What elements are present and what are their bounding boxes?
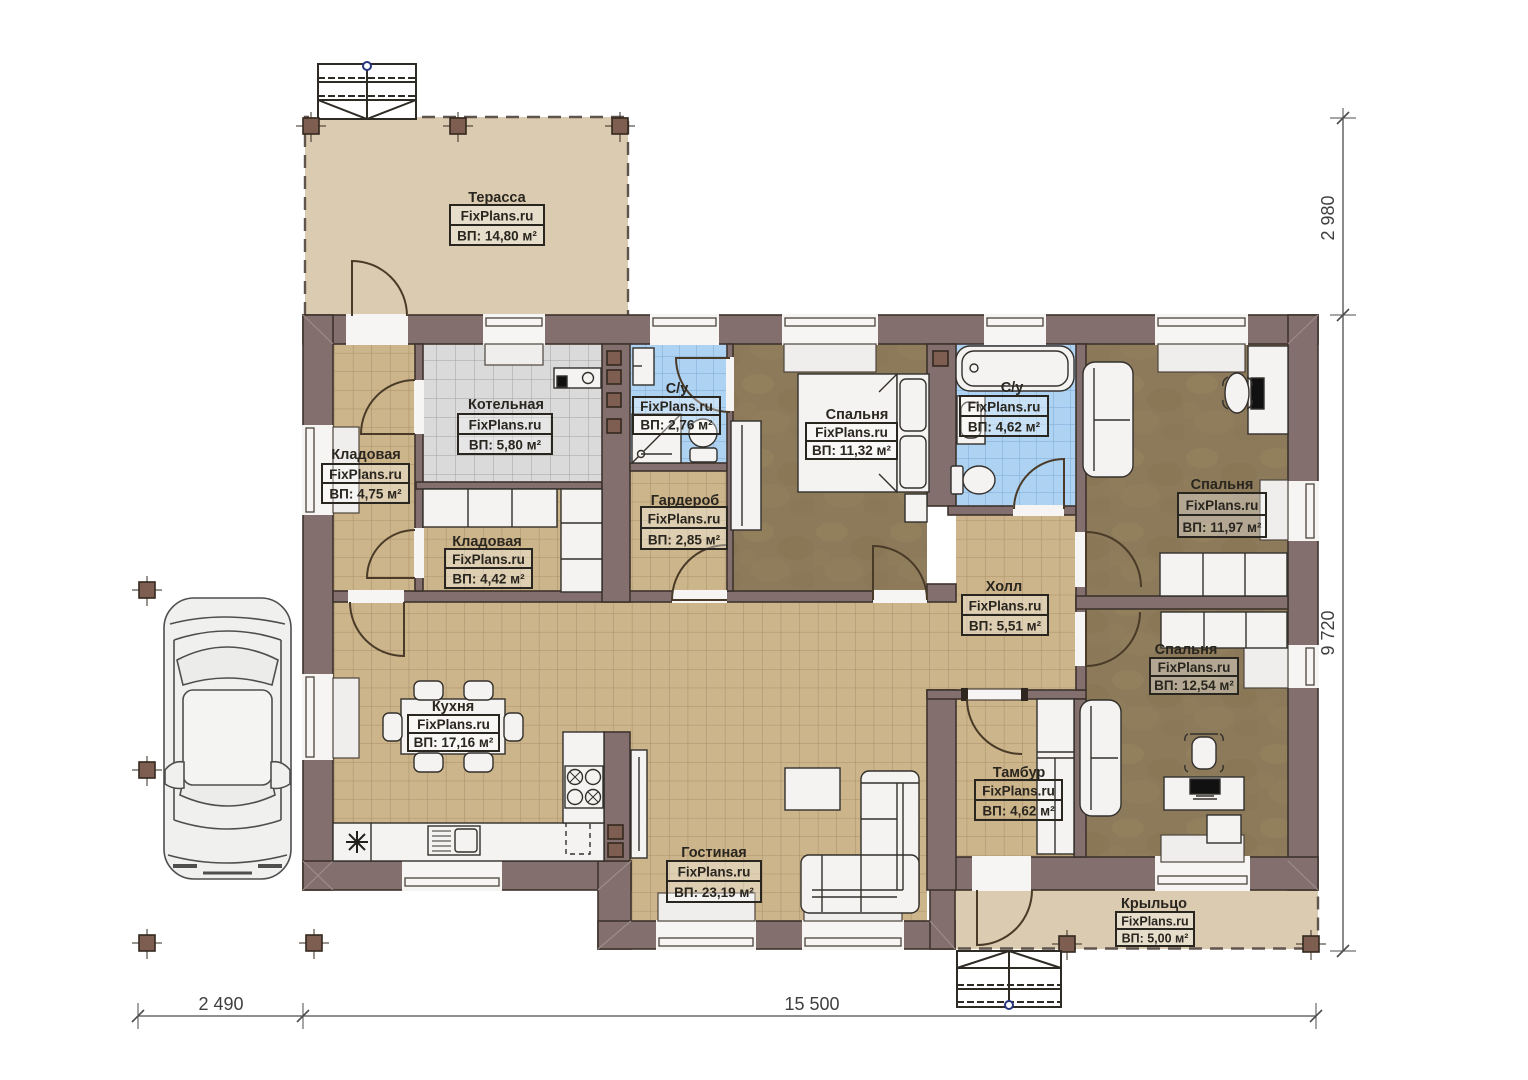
svg-text:С/у: С/у	[1001, 380, 1024, 396]
svg-text:2 490: 2 490	[198, 994, 243, 1014]
svg-text:ВП: 5,80 м²: ВП: 5,80 м²	[469, 438, 542, 453]
svg-text:FixPlans.ru: FixPlans.ru	[469, 418, 542, 433]
svg-text:Терасса: Терасса	[468, 190, 526, 206]
svg-text:ВП: 17,16 м²: ВП: 17,16 м²	[414, 735, 494, 750]
svg-text:ВП: 4,62 м²: ВП: 4,62 м²	[982, 804, 1055, 819]
svg-text:FixPlans.ru: FixPlans.ru	[329, 467, 402, 482]
svg-text:FixPlans.ru: FixPlans.ru	[1158, 660, 1231, 675]
svg-text:ВП: 23,19 м²: ВП: 23,19 м²	[674, 885, 754, 900]
svg-text:Кладовая: Кладовая	[331, 447, 400, 463]
svg-text:Спальня: Спальня	[1191, 477, 1254, 493]
svg-text:ВП: 4,62 м²: ВП: 4,62 м²	[968, 420, 1041, 435]
svg-text:Спальня: Спальня	[1155, 642, 1218, 658]
svg-text:ВП: 2,85 м²: ВП: 2,85 м²	[648, 533, 721, 548]
svg-text:FixPlans.ru: FixPlans.ru	[417, 717, 490, 732]
svg-text:Гостиная: Гостиная	[681, 845, 747, 861]
svg-text:ВП: 5,51 м²: ВП: 5,51 м²	[969, 619, 1042, 634]
svg-text:FixPlans.ru: FixPlans.ru	[678, 865, 751, 880]
svg-text:FixPlans.ru: FixPlans.ru	[969, 599, 1042, 614]
svg-text:FixPlans.ru: FixPlans.ru	[1186, 498, 1259, 513]
svg-text:ВП: 4,75 м²: ВП: 4,75 м²	[329, 487, 402, 502]
svg-text:ВП: 11,32 м²: ВП: 11,32 м²	[812, 443, 891, 458]
svg-text:Крыльцо: Крыльцо	[1121, 896, 1187, 912]
svg-text:FixPlans.ru: FixPlans.ru	[982, 784, 1055, 799]
svg-text:С/у: С/у	[666, 381, 689, 397]
svg-text:Холл: Холл	[986, 579, 1022, 595]
svg-text:Тамбур: Тамбур	[993, 765, 1046, 781]
svg-text:FixPlans.ru: FixPlans.ru	[640, 399, 713, 414]
svg-text:ВП: 5,00 м²: ВП: 5,00 м²	[1122, 932, 1189, 946]
svg-text:FixPlans.ru: FixPlans.ru	[461, 209, 534, 224]
svg-text:Спальня: Спальня	[826, 407, 889, 423]
svg-text:15 500: 15 500	[784, 994, 839, 1014]
svg-text:9 720: 9 720	[1318, 610, 1338, 655]
svg-text:FixPlans.ru: FixPlans.ru	[815, 425, 888, 440]
svg-text:FixPlans.ru: FixPlans.ru	[968, 400, 1041, 415]
svg-text:ВП: 2,76 м²: ВП: 2,76 м²	[640, 418, 713, 433]
svg-text:FixPlans.ru: FixPlans.ru	[648, 512, 721, 527]
svg-text:Котельная: Котельная	[468, 397, 544, 413]
svg-text:Кухня: Кухня	[432, 699, 474, 715]
svg-text:FixPlans.ru: FixPlans.ru	[1121, 915, 1188, 929]
svg-text:ВП: 12,54 м²: ВП: 12,54 м²	[1154, 678, 1234, 693]
svg-text:ВП: 11,97 м²: ВП: 11,97 м²	[1183, 520, 1262, 535]
svg-text:ВП: 4,42 м²: ВП: 4,42 м²	[452, 572, 525, 587]
svg-text:ВП: 14,80 м²: ВП: 14,80 м²	[457, 229, 537, 244]
svg-text:Кладовая: Кладовая	[452, 534, 521, 550]
svg-text:FixPlans.ru: FixPlans.ru	[452, 552, 525, 567]
svg-text:2 980: 2 980	[1318, 195, 1338, 240]
